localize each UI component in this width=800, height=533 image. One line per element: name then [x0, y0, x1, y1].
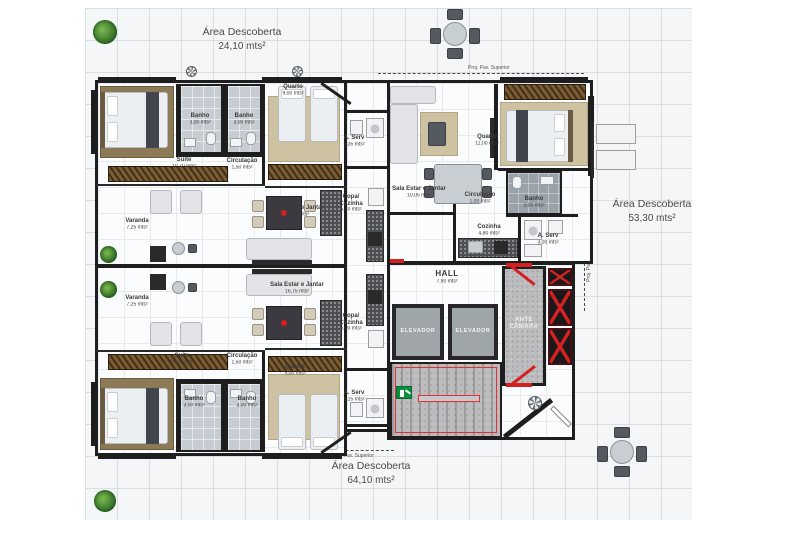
duct-shaft — [548, 268, 572, 286]
room-label-sala-bottom: Sala Estar e Jantar16,75 mts² — [266, 282, 328, 295]
room-area: 7,25 mts² — [119, 225, 156, 231]
wall — [223, 382, 226, 452]
wall — [265, 348, 347, 350]
room-name: A. Serv — [530, 233, 566, 240]
pillow — [107, 96, 118, 116]
wall-band — [91, 382, 97, 446]
toilet — [512, 176, 522, 189]
ac-condenser — [596, 124, 636, 144]
room-label-varanda-bottom: Varanda7,25 mts² — [117, 295, 157, 308]
wall — [494, 84, 498, 170]
drain-icon — [186, 66, 197, 77]
table-centerpiece — [281, 320, 287, 326]
room-area: 10,05 mts² — [388, 193, 451, 199]
elevator-label: ELEVADOR — [452, 328, 494, 334]
bed-throw — [516, 110, 528, 162]
room-label-copa-top: Copa/ Cozinha5,70 mts² — [334, 194, 368, 214]
laundry-tank — [350, 120, 363, 135]
room-label-aserv-bottom: A. Serv2,15 mts² — [336, 390, 372, 403]
toilet — [246, 132, 256, 145]
sink — [540, 176, 554, 185]
outdoor-area-label-top: Área Descoberta 24,10 mts² — [202, 26, 282, 53]
patio-chair — [469, 28, 480, 44]
room-name: Circulação — [220, 353, 264, 360]
patio-chair — [447, 48, 463, 59]
room-label-banho-right: Banho3,00 mts² — [516, 196, 552, 209]
room-area: 1,00 mts² — [460, 199, 500, 205]
wall — [506, 214, 578, 217]
room-area: 3,00 mts² — [183, 120, 218, 126]
room-name: Banho — [175, 396, 213, 403]
chair — [252, 308, 264, 320]
patio-chair — [447, 9, 463, 20]
room-area: 16,75 mts² — [268, 212, 325, 218]
exit-glyph — [405, 389, 411, 394]
room-area: 4,80 mts² — [471, 231, 508, 237]
room-area: 3,00 mts² — [227, 120, 262, 126]
laundry-tank — [548, 220, 563, 234]
emergency-exit-sign — [396, 386, 412, 399]
room-area: 7,90 mts² — [427, 279, 467, 285]
room-name: Copa/ Cozinha — [334, 194, 368, 207]
toilet — [206, 132, 216, 145]
lounge-chair — [150, 190, 172, 214]
exit-glyph — [400, 390, 404, 397]
wall — [518, 212, 521, 262]
wall — [346, 368, 388, 371]
room-name: Circulação — [220, 158, 264, 165]
room-area: 2,15 mts² — [337, 397, 370, 403]
chair — [252, 200, 264, 212]
sofa-chaise — [390, 86, 436, 104]
ante-camara-room: ANTE CÂMARA — [502, 266, 546, 386]
sofa — [390, 104, 418, 164]
room-label-banho-top-2: Banho3,00 mts² — [225, 113, 263, 126]
wall-glass — [95, 184, 265, 186]
room-area: 16,75 mts² — [268, 289, 325, 295]
chair — [252, 216, 264, 228]
outdoor-area-name: Área Descoberta — [203, 26, 282, 38]
room-name: Varanda — [117, 295, 157, 302]
room-area: 1,50 mts² — [222, 165, 262, 171]
chair — [424, 168, 434, 180]
chair — [188, 283, 197, 292]
room-area: 2,35 mts² — [337, 142, 370, 148]
wall-band — [98, 453, 176, 459]
room-label-sala-top: Sala Estar e Jantar16,75 mts² — [266, 205, 328, 218]
room-label-sala-right: Sala Estar e Jantar10,05 mts² — [385, 186, 453, 199]
elevator-label: ELEVADOR — [396, 328, 440, 334]
laundry-tank — [350, 402, 363, 417]
room-label-banho-bottom-1: Banho3,00 mts² — [175, 396, 213, 409]
room-name: HALL — [425, 270, 469, 279]
room-name: Banho — [516, 196, 552, 203]
room-name: Banho — [181, 113, 219, 120]
room-label-circulacao-right: Circulação1,00 mts² — [458, 192, 502, 205]
patio-chair — [614, 466, 630, 477]
wall — [265, 186, 347, 188]
wall — [346, 166, 388, 169]
pillow — [107, 418, 118, 438]
outdoor-area-value: 24,10 mts² — [218, 41, 265, 52]
wall — [176, 379, 265, 382]
wardrobe — [504, 84, 586, 100]
wall-band — [98, 77, 176, 83]
tv-unit — [150, 246, 166, 262]
fridge — [368, 330, 384, 348]
room-area: 10,70 mts² — [164, 360, 201, 366]
room-name: Copa/ Cozinha — [334, 313, 368, 326]
patio-chair — [430, 28, 441, 44]
chair — [482, 168, 492, 180]
bed-headboard — [100, 92, 105, 148]
bistro-table — [172, 281, 185, 294]
stair-rail — [418, 395, 480, 402]
room-area: 9,00 mts² — [275, 91, 312, 97]
room-label-suite-bottom: Suíte10,70 mts² — [162, 353, 202, 366]
room-name: Circulação — [458, 192, 502, 199]
bed-throw — [146, 388, 159, 444]
room-name: Banho — [225, 113, 263, 120]
patio-chair — [614, 427, 630, 438]
plant — [100, 246, 117, 263]
patio-table — [610, 440, 634, 464]
pillow — [554, 138, 565, 156]
room-area: 5,00 mts² — [335, 326, 366, 332]
wardrobe — [268, 164, 342, 180]
staircase — [390, 362, 502, 438]
room-area: 5,70 mts² — [335, 207, 366, 213]
room-label-quarto-right: Quarto11,00 mts² — [467, 134, 507, 147]
room-name: Sala Estar e Jantar — [266, 282, 328, 289]
wall-band — [262, 77, 342, 83]
room-area: 1,50 mts² — [222, 360, 262, 366]
wall — [346, 424, 388, 427]
room-area: 9,00 mts² — [277, 371, 314, 377]
tv-rack — [252, 260, 312, 265]
room-area: 11,00 mts² — [469, 141, 506, 147]
pillow — [107, 392, 118, 412]
room-name: Quarto — [467, 134, 507, 141]
room-label-circulacao-bottom: Circulação1,50 mts² — [220, 353, 264, 366]
wall-glass — [95, 350, 265, 352]
room-area: 7,25 mts² — [119, 302, 156, 308]
room-label-cozinha-right: Cozinha4,80 mts² — [469, 224, 509, 237]
elevator-shaft: ELEVADOR — [448, 304, 498, 360]
wall — [390, 212, 456, 215]
outdoor-area-name: Área Descoberta — [332, 460, 411, 472]
tv-unit — [150, 274, 166, 290]
room-name: Suíte — [164, 157, 204, 164]
sink — [184, 138, 196, 147]
room-label-aserv-right: A. Serv3,00 mts² — [530, 233, 566, 246]
stove — [494, 241, 508, 254]
chair — [188, 244, 197, 253]
outdoor-area-label-bottom: Área Descoberta 64,10 mts² — [331, 460, 411, 487]
projection-label-top: Proj. Pav. Superior — [468, 65, 510, 71]
coffee-table — [428, 122, 446, 146]
room-name: Sala Estar e Jantar — [385, 186, 453, 193]
room-area: 3,00 mts² — [230, 403, 265, 409]
room-name: A. Serv — [336, 135, 372, 142]
projection-dash-top — [378, 73, 584, 75]
ante-camara-label: ANTE CÂMARA — [505, 317, 543, 332]
room-label-hall: HALL7,90 mts² — [425, 270, 469, 285]
pillow — [554, 114, 565, 132]
patio-chair — [597, 446, 608, 462]
room-label-aserv-top: A. Serv2,35 mts² — [336, 135, 372, 148]
room-name: Varanda — [117, 218, 157, 225]
bed-headboard — [568, 110, 573, 162]
sofa — [246, 238, 312, 260]
duct-shaft — [548, 328, 572, 365]
wall — [176, 382, 179, 452]
room-label-banho-top-1: Banho3,00 mts² — [181, 113, 219, 126]
lounge-chair — [180, 322, 202, 346]
lounge-chair — [150, 322, 172, 346]
room-label-quarto-top: Quarto9,00 mts² — [273, 84, 313, 97]
vent-fan-icon — [528, 396, 542, 410]
room-label-banho-bottom-2: Banho3,00 mts² — [228, 396, 266, 409]
fridge — [368, 188, 384, 206]
stove — [368, 232, 382, 246]
lounge-chair — [180, 190, 202, 214]
wall-band — [500, 77, 588, 83]
chair — [304, 324, 316, 336]
pillow — [107, 122, 118, 142]
kitchen-counter — [458, 238, 518, 258]
room-label-copa-bottom: Copa/ Cozinha5,00 mts² — [334, 313, 368, 333]
pillow — [281, 437, 303, 447]
elevator-shaft: ELEVADOR — [392, 304, 444, 360]
room-name: Quarto — [275, 364, 315, 371]
room-label-circulacao-top: Circulação1,50 mts² — [220, 158, 264, 171]
drain-icon — [292, 66, 303, 77]
room-name: A. Serv — [336, 390, 372, 397]
chair — [304, 308, 316, 320]
room-name: Suíte — [162, 353, 202, 360]
tv-rack — [252, 269, 312, 274]
room-area: 3,00 mts² — [177, 403, 212, 409]
ac-bracket — [591, 122, 594, 178]
duct-shaft — [548, 289, 572, 326]
cabinet — [524, 244, 542, 257]
outdoor-area-value: 64,10 mts² — [347, 475, 394, 486]
room-area: 3,00 mts² — [531, 240, 564, 246]
plant — [100, 281, 117, 298]
bistro-table — [172, 242, 185, 255]
room-label-varanda-top: Varanda7,25 mts² — [117, 218, 157, 231]
room-label-quarto-bottom: Quarto9,00 mts² — [275, 364, 315, 377]
wall — [346, 110, 388, 113]
chair — [252, 324, 264, 336]
room-name: Quarto — [273, 84, 313, 91]
plant — [94, 490, 116, 512]
stove — [368, 290, 382, 304]
bed-headboard — [100, 388, 105, 444]
room-name: Sala Estar e Jantar — [266, 205, 328, 212]
ac-condenser — [596, 150, 636, 170]
room-name: Cozinha — [469, 224, 509, 231]
bed-throw — [146, 92, 159, 148]
sink — [230, 138, 242, 147]
outdoor-area-name: Área Descoberta — [613, 198, 692, 210]
floor-plan: Área Descoberta 24,10 mts² Área Descober… — [0, 0, 800, 533]
sink — [468, 241, 483, 253]
wall-band — [91, 90, 97, 154]
room-area: 3,00 mts² — [517, 203, 550, 209]
patio-table — [443, 22, 467, 46]
plant — [93, 20, 117, 44]
wall-band — [262, 453, 342, 459]
patio-chair — [636, 446, 647, 462]
room-name: Banho — [228, 396, 266, 403]
room-area: 10,70 mts² — [166, 164, 203, 170]
wall — [176, 84, 179, 154]
room-label-suite-top: Suíte10,70 mts² — [164, 157, 204, 170]
outdoor-area-value: 53,30 mts² — [628, 213, 675, 224]
outdoor-area-label-right: Área Descoberta 53,30 mts² — [612, 198, 692, 225]
apartment-entry-door — [390, 259, 404, 263]
